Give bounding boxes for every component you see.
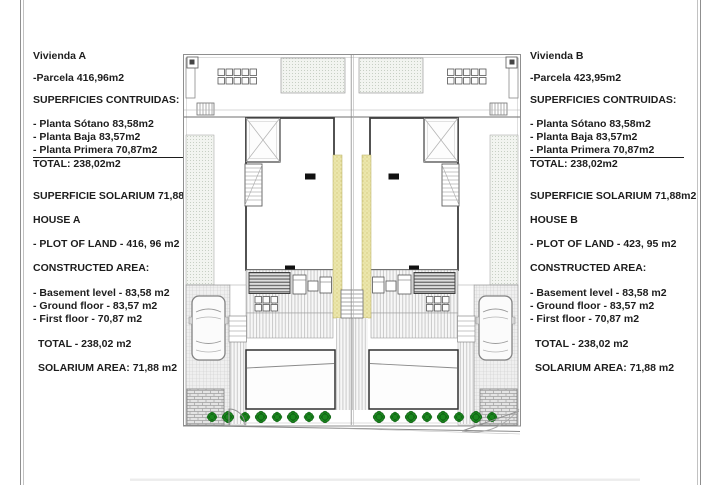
terrace-band [246,313,333,338]
brick-pillar [187,389,224,425]
site-plan [0,0,726,485]
plan-sheet: Vivienda A -Parcela 416,96m2 SUPERFICIES… [0,0,726,485]
roof-stairs [197,103,214,115]
lounge-chair [320,277,332,293]
awning [249,273,290,294]
entry-steps [229,316,247,342]
solarium-hatch [281,58,345,93]
side-table [308,281,318,291]
lounge-chair [293,275,306,294]
door-marker [305,174,316,180]
scan-artifact [130,479,640,481]
pool [246,350,335,409]
garden-strip [186,135,214,285]
